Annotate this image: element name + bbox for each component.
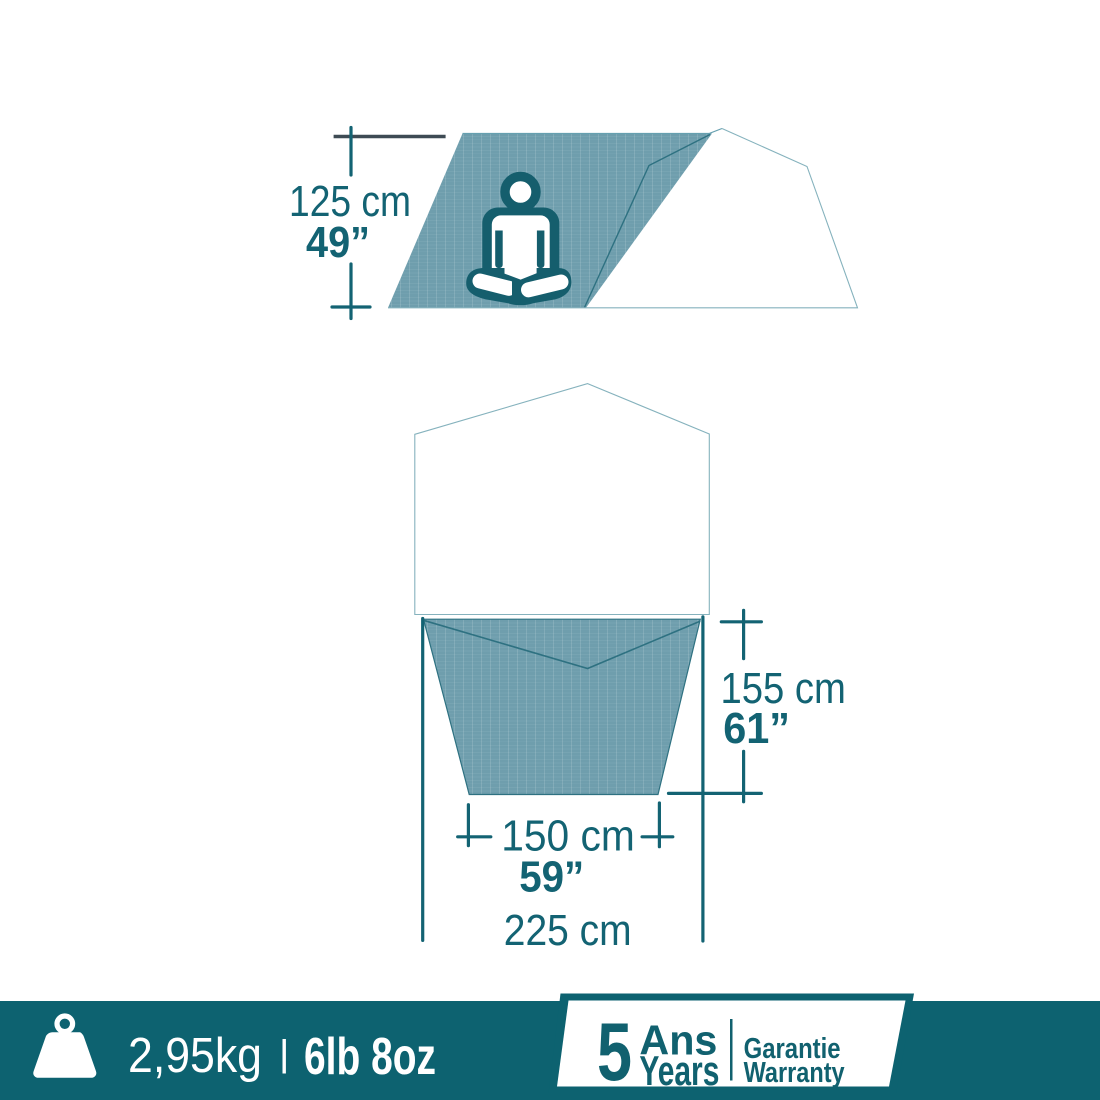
svg-text:5: 5 <box>597 1005 632 1098</box>
svg-text:59”: 59” <box>519 853 584 902</box>
svg-text:225 cm: 225 cm <box>504 906 632 955</box>
svg-text:61”: 61” <box>723 704 790 753</box>
svg-text:Warranty: Warranty <box>744 1057 845 1089</box>
svg-text:2,95kg: 2,95kg <box>128 1029 262 1083</box>
svg-text:6lb 8oz: 6lb 8oz <box>304 1028 436 1086</box>
svg-text:49”: 49” <box>306 218 370 267</box>
svg-text:Years: Years <box>639 1047 719 1094</box>
